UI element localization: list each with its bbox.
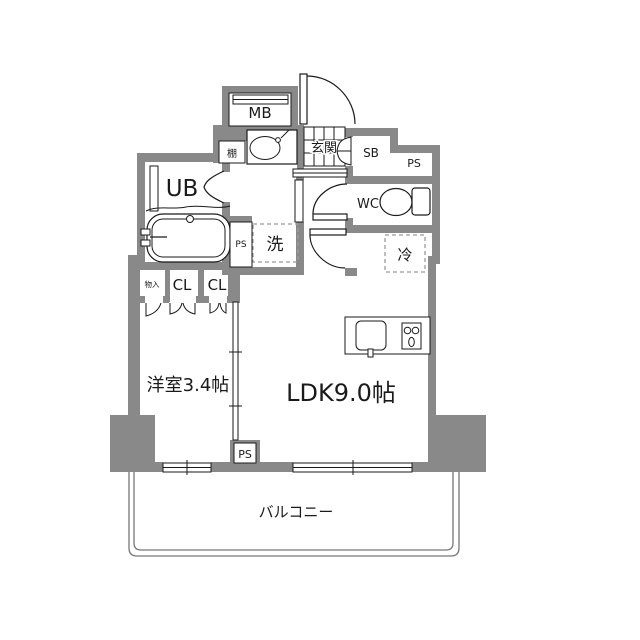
wc-door-swing-arc — [313, 184, 347, 214]
bath-counter-edge — [146, 206, 230, 211]
room-label-unit-bath: UB — [166, 176, 199, 202]
wc: WC — [357, 188, 430, 216]
room-label-shoe-box: SB — [363, 146, 379, 160]
room-label-shelf: 棚 — [227, 147, 237, 160]
room-label-entrance: 玄関 — [311, 141, 337, 156]
room-label-ps-upper: PS — [407, 157, 421, 170]
room-label-western-room: 洋室3.4帖 — [147, 375, 230, 396]
floor-plan: MB 棚 玄関 SB PS — [0, 0, 640, 640]
storage-door — [146, 303, 161, 316]
ps-lower: PS — [234, 443, 256, 463]
bathtub-faucet — [141, 240, 150, 246]
shelf-box: 棚 — [219, 141, 245, 163]
closet-door — [183, 303, 195, 314]
wall-segment — [128, 255, 140, 420]
kitchen-sink — [356, 321, 386, 350]
room-label-storage: 物入 — [145, 279, 160, 289]
ps-bath: PS — [230, 222, 252, 267]
unit-bath: UB — [141, 166, 230, 262]
walls — [110, 86, 486, 472]
partition-double-line — [233, 302, 238, 440]
washroom-sliding-door — [295, 180, 303, 222]
ldk-door-leaf — [310, 229, 346, 235]
entrance-door-leaf — [300, 74, 307, 124]
room-label-fridge: 冷 — [397, 246, 412, 264]
bathtub-faucet — [141, 229, 150, 235]
wall-segment — [352, 225, 440, 233]
stove-outline — [402, 323, 421, 349]
room-partition — [229, 302, 242, 440]
basin-faucet — [276, 138, 281, 143]
wall-segment — [163, 296, 169, 303]
room-label-closet-right: CL — [208, 276, 227, 294]
bathtub-inner — [152, 219, 225, 257]
washer-space: 洗 — [253, 224, 298, 262]
closet-door — [220, 303, 226, 313]
wall-segment — [211, 462, 230, 472]
room-label-mb: MB — [248, 104, 271, 122]
wall-segment — [345, 176, 440, 184]
kitchen-counter — [345, 317, 430, 357]
ldk-door-swing-arc — [310, 235, 345, 268]
wall-segment — [137, 153, 145, 267]
wall-segment — [412, 462, 432, 472]
wall-segment — [390, 136, 398, 153]
room-label-washer: 洗 — [267, 235, 284, 255]
toilet-bowl — [380, 189, 412, 216]
room-label-wc: WC — [357, 197, 379, 212]
wall-pillar-right — [428, 415, 486, 472]
wall-segment — [140, 262, 240, 270]
wc-door-leaf — [313, 214, 347, 220]
wall-segment — [260, 462, 293, 472]
bathtub-drain — [187, 216, 194, 223]
closet-door — [170, 303, 182, 314]
room-label-ps-lower: PS — [238, 448, 252, 461]
floor-plan-canvas: MB 棚 玄関 SB PS — [0, 0, 640, 640]
wall-segment — [228, 216, 252, 222]
wall-segment — [351, 128, 398, 136]
fridge-space: 冷 — [385, 235, 425, 272]
wall-segment — [128, 462, 163, 472]
wc-door — [313, 184, 347, 220]
entrance-door — [300, 74, 355, 124]
wall-segment — [196, 296, 209, 303]
closet-door — [210, 303, 219, 313]
balcony: バルコニー — [129, 472, 459, 556]
wall-segment — [137, 153, 225, 162]
meter-box: MB — [229, 93, 291, 126]
toilet-tank — [412, 188, 430, 215]
room-label-ldk: LDK9.0帖 — [286, 379, 396, 407]
kitchen-faucet — [368, 349, 373, 357]
wash-basin — [247, 130, 297, 164]
bath-mirror-cabinet — [150, 166, 158, 211]
closets: 物入 CL CL — [145, 276, 228, 316]
room-label-closet-left: CL — [173, 276, 192, 294]
wall-segment — [128, 296, 145, 303]
wall-segment — [432, 145, 440, 260]
room-label-ps-bath: PS — [235, 240, 246, 250]
wall-segment — [213, 133, 247, 141]
ldk-door — [310, 229, 346, 268]
room-label-balcony: バルコニー — [259, 503, 334, 521]
bath-folding-door — [204, 171, 224, 203]
wall-segment — [345, 268, 357, 276]
entrance-door-swing-arc — [307, 76, 355, 124]
